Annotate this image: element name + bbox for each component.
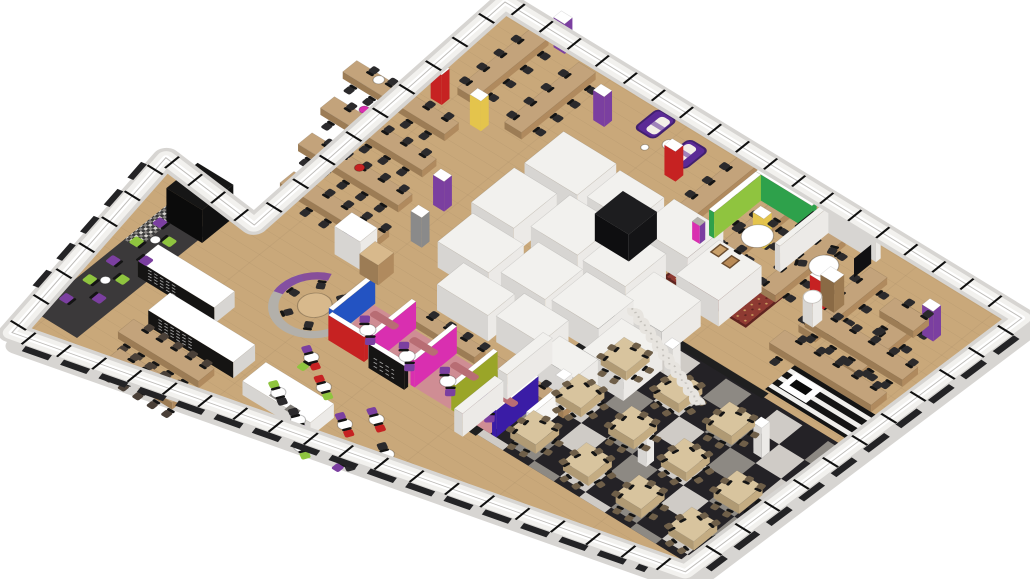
chair	[404, 362, 415, 372]
floorplate	[0, 0, 1030, 579]
chair	[365, 335, 376, 345]
chair	[439, 367, 450, 377]
chair	[359, 315, 370, 325]
floorplan-stage	[0, 0, 1030, 579]
chair	[398, 342, 409, 352]
chair	[445, 387, 456, 397]
isometric-floorplan-render	[0, 0, 1030, 579]
